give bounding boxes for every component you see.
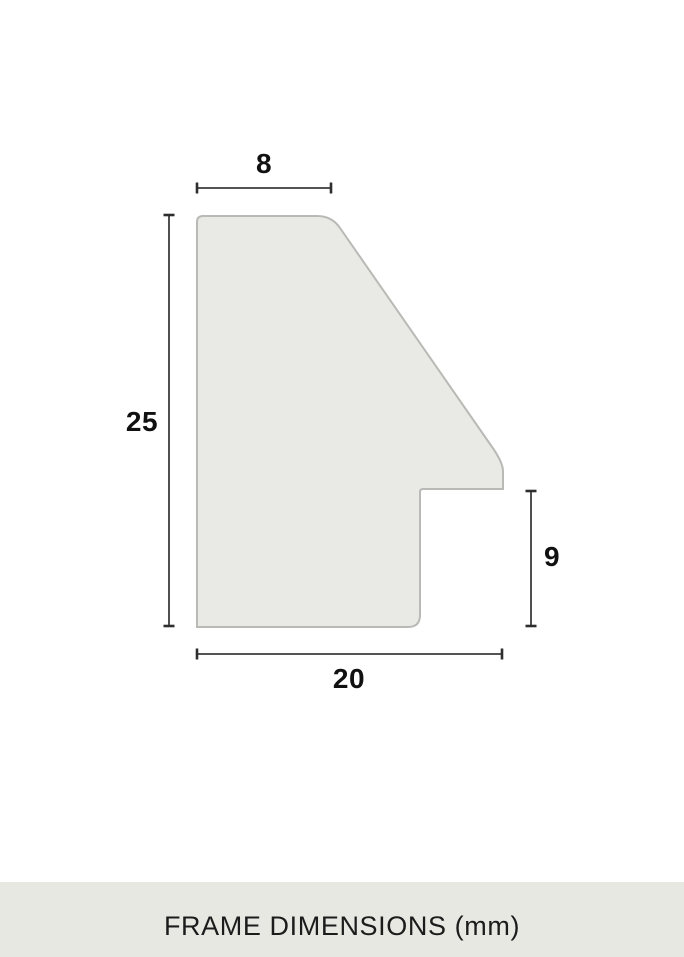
dimension-label-bottom-width: 20	[333, 665, 365, 693]
frame-profile-shape	[197, 216, 503, 627]
frame-dimensions-diagram: 8 25 9 20 FRAME DIMENSIONS (mm)	[0, 0, 684, 957]
dimension-top-width	[197, 183, 331, 194]
footer-title: FRAME DIMENSIONS (mm)	[164, 913, 520, 940]
dimension-left-height	[164, 215, 175, 626]
dimension-right-height	[526, 491, 537, 626]
dimension-bottom-width	[197, 649, 502, 660]
dimension-label-right-height: 9	[544, 543, 560, 571]
profile-diagram-canvas	[0, 0, 684, 957]
dimension-label-top-width: 8	[256, 150, 272, 178]
footer-bar: FRAME DIMENSIONS (mm)	[0, 882, 684, 957]
dimension-label-left-height: 25	[126, 408, 158, 436]
